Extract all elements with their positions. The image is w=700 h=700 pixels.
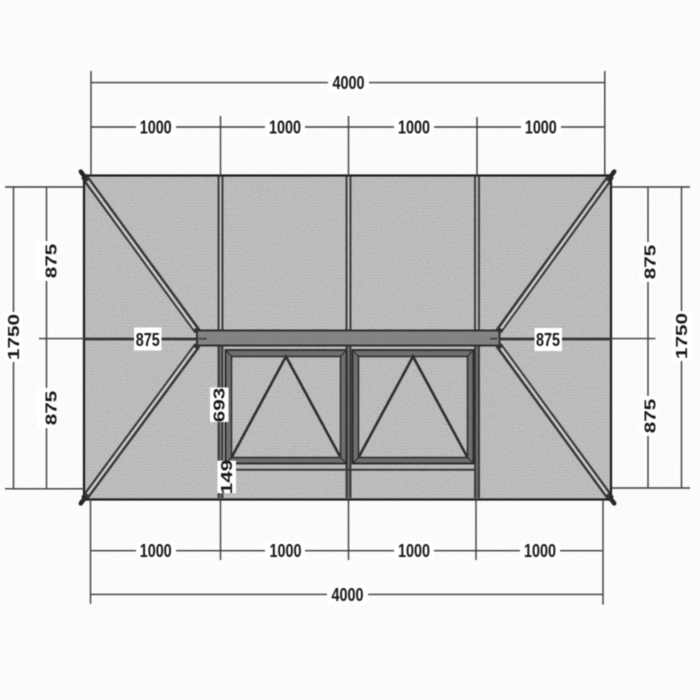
svg-text:1000: 1000 [270, 540, 302, 561]
svg-text:875: 875 [136, 329, 160, 350]
svg-text:1750: 1750 [5, 314, 22, 360]
svg-text:1000: 1000 [398, 540, 430, 561]
svg-text:149: 149 [219, 460, 236, 494]
svg-text:1750: 1750 [673, 313, 690, 359]
svg-text:693: 693 [211, 388, 228, 422]
svg-text:875: 875 [642, 399, 659, 433]
svg-text:1000: 1000 [524, 540, 556, 561]
svg-text:4000: 4000 [333, 72, 365, 93]
svg-text:1000: 1000 [398, 117, 430, 138]
svg-text:875: 875 [536, 329, 560, 350]
svg-text:875: 875 [642, 245, 659, 279]
svg-text:1000: 1000 [269, 117, 301, 138]
svg-text:4000: 4000 [332, 584, 364, 605]
svg-text:875: 875 [43, 244, 60, 278]
svg-text:1000: 1000 [525, 117, 557, 138]
svg-text:1000: 1000 [140, 117, 172, 138]
svg-text:1000: 1000 [140, 540, 172, 561]
svg-text:875: 875 [43, 391, 60, 425]
